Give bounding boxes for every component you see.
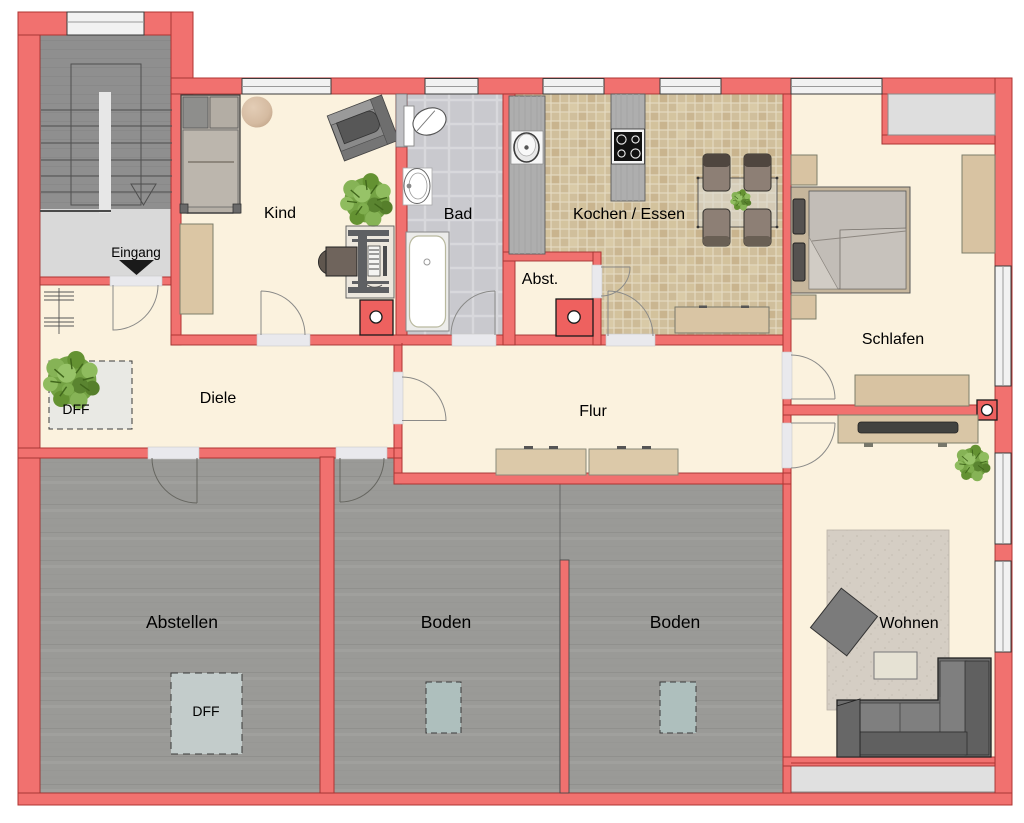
svg-text:Abst.: Abst. [522,271,558,288]
svg-text:Flur: Flur [579,403,607,420]
svg-text:Boden: Boden [650,612,701,632]
svg-text:DFF: DFF [62,401,89,417]
svg-text:Boden: Boden [421,612,472,632]
svg-text:Wohnen: Wohnen [879,615,938,632]
svg-text:Kind: Kind [264,205,296,222]
svg-text:Eingang: Eingang [111,245,161,260]
svg-text:Schlafen: Schlafen [862,331,924,348]
svg-text:Abstellen: Abstellen [146,612,218,632]
svg-text:DFF: DFF [192,703,219,719]
svg-text:Bad: Bad [444,206,472,223]
svg-text:Kochen / Essen: Kochen / Essen [573,206,685,223]
svg-text:Diele: Diele [200,390,237,407]
